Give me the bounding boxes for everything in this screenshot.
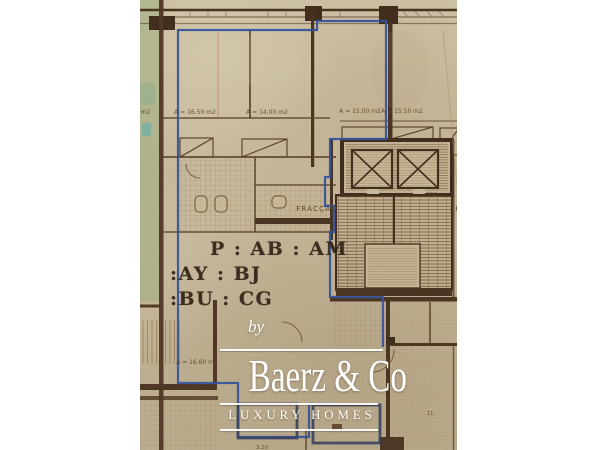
room-area-label: A = 15.00 m2 [339, 108, 381, 115]
room-area-label: A = 15.50 m2 [381, 108, 423, 115]
fraccao-label: FRACÇÃO [296, 204, 338, 213]
listing-image-page: m2 A = 16.50 m2 A = 14.00 m2 A = 15.00 m… [0, 0, 600, 450]
stamp-line: :BU : CG [170, 288, 273, 310]
agency-tagline: LUXURY HOMES [218, 407, 382, 423]
room-area-label: A = 16.60 m2 [176, 359, 218, 366]
plan-dimension: 3.20 [256, 445, 269, 450]
floor-plan-image: m2 A = 16.50 m2 A = 14.00 m2 A = 15.00 m… [140, 0, 457, 450]
room-area-label: A = 16.50 m2 [174, 109, 216, 116]
agency-logo-text: Baerz & Co [218, 352, 382, 400]
room-area-label: m2 [141, 109, 151, 116]
plan-number: 116 [427, 192, 438, 198]
agency-name: Baerz & Co [249, 352, 407, 400]
watermark-rule-middle [220, 403, 378, 405]
watermark-rule-bottom [220, 429, 378, 431]
stamp-line: :AY : BJ [170, 263, 262, 285]
plan-number: 11 [427, 411, 434, 417]
fraccao-label-partial: FR [450, 205, 457, 213]
watermark-by-text: by [236, 317, 276, 337]
stamp-line: P : AB : AM [210, 238, 348, 260]
room-area-label: A = 14.00 m2 [246, 109, 288, 116]
